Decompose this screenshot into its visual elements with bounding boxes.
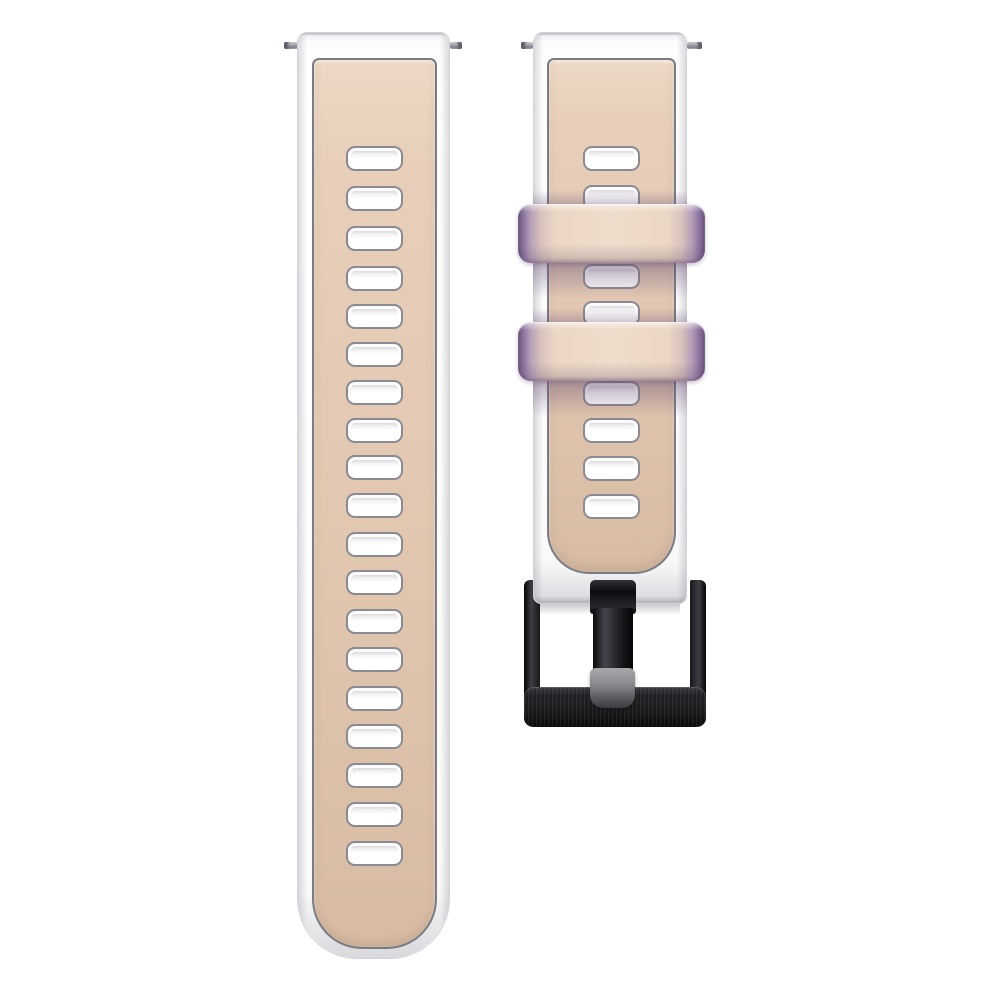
strap-hole xyxy=(346,418,403,443)
keeper-shadow xyxy=(533,379,687,417)
spring-bar-pin xyxy=(521,42,533,49)
spring-bar-pin xyxy=(687,42,702,49)
strap-hole xyxy=(583,418,640,443)
strap-hole xyxy=(583,494,640,519)
left-strap-beige-panel xyxy=(312,58,437,949)
strap-hole xyxy=(346,266,403,291)
buckle-tongue-tip xyxy=(590,668,635,708)
keeper-shadow xyxy=(533,190,687,204)
strap-hole xyxy=(346,763,403,788)
strap-hole xyxy=(346,609,403,634)
strap-hole xyxy=(346,226,403,251)
keeper-shadow xyxy=(533,308,687,322)
strap-hole xyxy=(346,304,403,329)
buckle-tongue xyxy=(590,580,636,708)
strap-hole xyxy=(346,647,403,672)
strap-hole xyxy=(583,456,640,481)
strap-hole xyxy=(346,841,403,866)
strap-hole xyxy=(346,570,403,595)
strap-keeper-loop xyxy=(518,322,705,381)
strap-hole xyxy=(346,686,403,711)
product-photo-watch-strap xyxy=(0,0,1000,1000)
spring-bar-pin xyxy=(284,42,298,49)
strap-hole xyxy=(346,380,403,405)
strap-hole xyxy=(346,186,403,211)
strap-hole xyxy=(346,342,403,367)
strap-hole xyxy=(346,724,403,749)
strap-hole xyxy=(346,455,403,480)
strap-hole xyxy=(583,146,640,171)
strap-hole xyxy=(346,532,403,557)
strap-hole xyxy=(346,146,403,171)
strap-hole xyxy=(346,802,403,827)
strap-hole xyxy=(346,493,403,518)
left-strap xyxy=(297,32,450,959)
keeper-shadow xyxy=(533,261,687,299)
buckle-tongue-shaft xyxy=(593,608,633,674)
spring-bar-pin xyxy=(450,42,462,49)
strap-keeper-loop xyxy=(518,204,705,263)
